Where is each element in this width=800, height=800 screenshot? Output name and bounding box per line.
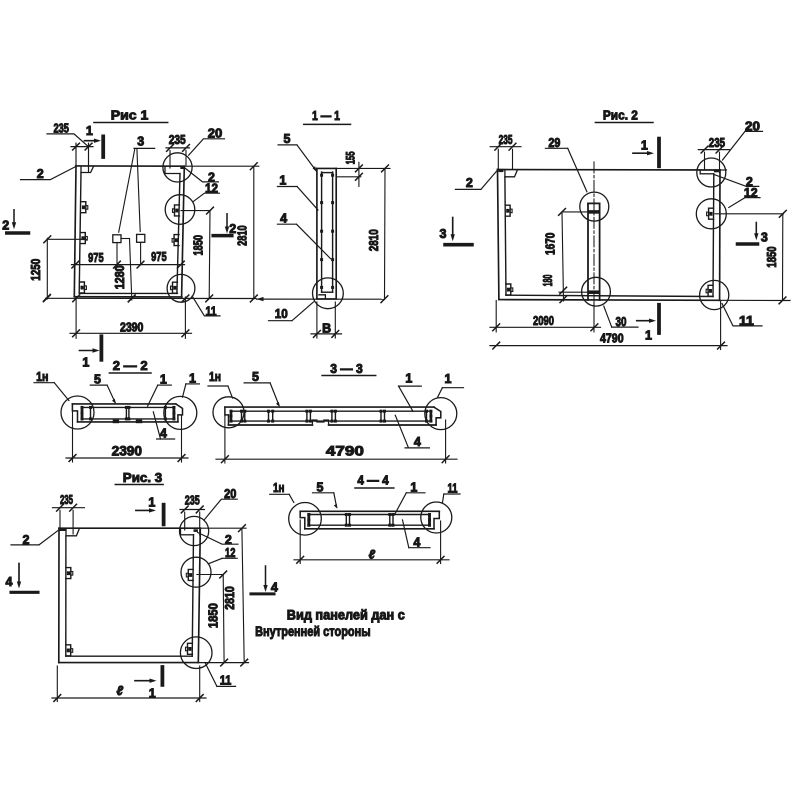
svg-text:2810: 2810 (223, 586, 237, 609)
svg-text:4790: 4790 (326, 442, 364, 458)
svg-text:5: 5 (284, 132, 291, 146)
svg-text:2 — 2: 2 — 2 (113, 358, 148, 373)
svg-text:1: 1 (82, 356, 89, 370)
svg-text:2810: 2810 (367, 229, 381, 251)
svg-text:5: 5 (317, 480, 324, 494)
svg-text:3 — 3: 3 — 3 (330, 361, 363, 376)
svg-text:4: 4 (414, 435, 421, 449)
svg-text:235: 235 (185, 494, 200, 508)
svg-text:12: 12 (205, 182, 218, 196)
svg-text:2810: 2810 (235, 225, 249, 246)
svg-text:1: 1 (279, 174, 286, 188)
svg-text:180: 180 (541, 275, 555, 287)
svg-text:1850: 1850 (207, 603, 221, 628)
svg-text:2390: 2390 (112, 443, 142, 458)
svg-text:1 — 1: 1 — 1 (312, 108, 340, 123)
svg-text:1: 1 (641, 139, 648, 153)
svg-text:1: 1 (148, 496, 155, 510)
svg-text:975: 975 (88, 251, 104, 265)
svg-text:1: 1 (86, 124, 93, 138)
svg-text:В: В (322, 321, 331, 335)
svg-text:975: 975 (151, 250, 167, 264)
svg-text:235: 235 (60, 493, 73, 507)
svg-text:Рис. 3: Рис. 3 (123, 470, 162, 485)
svg-text:20: 20 (745, 120, 760, 134)
svg-text:5: 5 (252, 370, 259, 384)
svg-text:5: 5 (94, 372, 101, 386)
svg-text:1н: 1н (273, 481, 284, 495)
svg-text:4: 4 (160, 426, 167, 440)
svg-text:11: 11 (220, 673, 232, 687)
svg-text:ℓ: ℓ (117, 683, 124, 698)
svg-text:1н: 1н (209, 370, 221, 384)
svg-text:1: 1 (445, 372, 452, 386)
svg-text:1670: 1670 (544, 233, 558, 255)
svg-text:Внутренней стороны: Внутренней стороны (255, 624, 371, 639)
svg-text:4: 4 (280, 211, 287, 225)
svg-text:155: 155 (344, 151, 358, 164)
svg-text:2: 2 (225, 533, 232, 547)
svg-text:2: 2 (466, 176, 473, 190)
svg-text:12: 12 (744, 186, 758, 200)
svg-text:235: 235 (169, 133, 186, 147)
svg-text:1280: 1280 (113, 265, 127, 289)
svg-text:1850: 1850 (765, 246, 779, 267)
svg-text:2: 2 (2, 218, 9, 232)
svg-text:3: 3 (440, 227, 447, 241)
svg-text:3: 3 (137, 134, 144, 148)
svg-text:1: 1 (189, 371, 196, 385)
svg-text:1250: 1250 (29, 259, 43, 281)
svg-text:2390: 2390 (120, 320, 144, 334)
svg-text:10: 10 (275, 307, 288, 321)
svg-text:4790: 4790 (600, 331, 624, 345)
svg-text:235: 235 (709, 136, 725, 150)
svg-text:20: 20 (224, 487, 236, 501)
svg-text:1: 1 (410, 480, 417, 494)
svg-text:4 — 4: 4 — 4 (357, 473, 389, 488)
svg-text:1: 1 (149, 686, 156, 700)
svg-text:11: 11 (206, 305, 217, 319)
svg-text:4: 4 (6, 575, 13, 589)
svg-text:11: 11 (739, 314, 754, 328)
svg-text:Вид панелей дан с: Вид панелей дан с (287, 608, 405, 623)
svg-text:1: 1 (405, 371, 412, 385)
svg-text:1850: 1850 (191, 235, 205, 256)
svg-text:4: 4 (271, 580, 278, 594)
svg-text:3: 3 (761, 231, 768, 245)
svg-text:11: 11 (448, 482, 458, 496)
svg-text:Рис. 2: Рис. 2 (603, 107, 638, 122)
svg-text:1н: 1н (36, 370, 48, 384)
svg-text:Рис 1: Рис 1 (111, 108, 149, 123)
svg-text:1: 1 (160, 372, 167, 386)
svg-text:2090: 2090 (533, 314, 554, 328)
svg-text:20: 20 (208, 127, 223, 141)
svg-text:1: 1 (645, 329, 652, 343)
